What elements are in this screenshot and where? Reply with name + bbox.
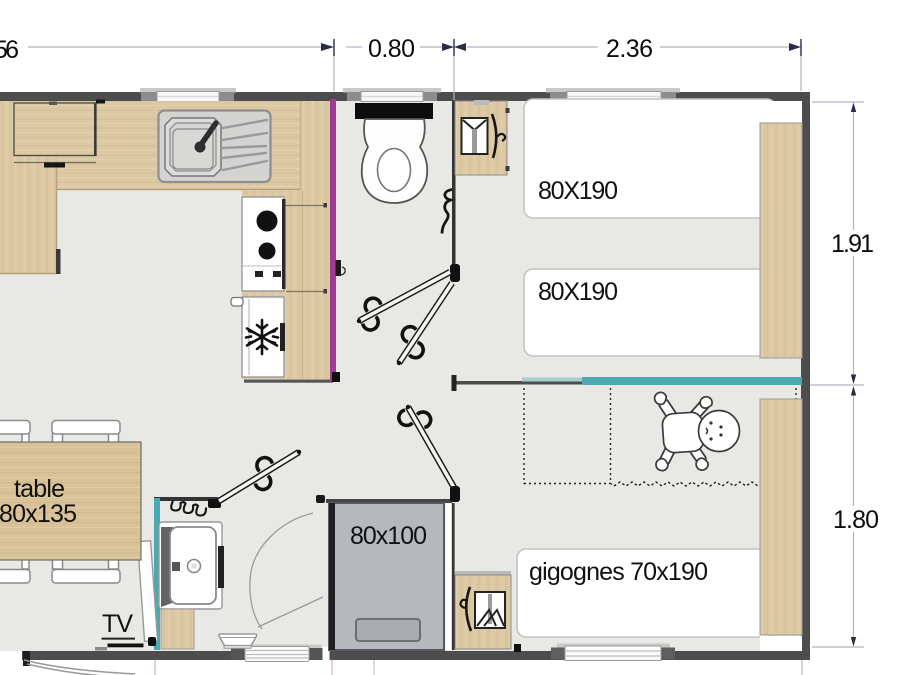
svg-text:80x100: 80x100 [350,522,427,550]
svg-text:2.36: 2.36 [606,35,653,63]
svg-text:80X190: 80X190 [538,177,618,205]
svg-text:1.80: 1.80 [833,506,879,534]
svg-text:1.91: 1.91 [831,230,874,258]
svg-text:56: 56 [0,36,19,64]
svg-text:80x135: 80x135 [0,500,77,528]
svg-text:gigognes 70x190: gigognes 70x190 [529,558,708,586]
svg-text:0.80: 0.80 [368,35,415,63]
svg-text:table: table [14,475,65,503]
svg-text:80X190: 80X190 [538,278,618,306]
svg-text:TV: TV [102,610,133,638]
